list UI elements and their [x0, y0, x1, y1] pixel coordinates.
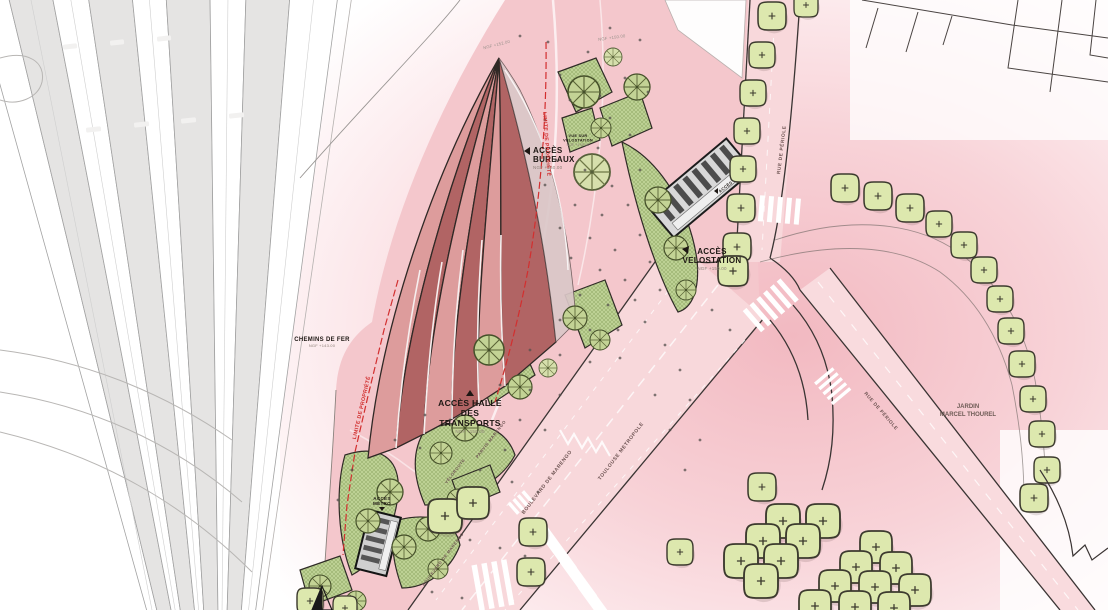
tree-simple-icon	[748, 473, 778, 504]
tree-simple-icon	[878, 592, 913, 610]
tree-simple-icon	[744, 564, 781, 602]
dot	[659, 289, 662, 292]
tree-round-a-icon	[474, 335, 504, 365]
dot	[351, 469, 354, 472]
dot	[639, 169, 642, 172]
dot	[611, 185, 614, 188]
tree-simple-icon	[799, 590, 834, 610]
dot	[634, 299, 637, 302]
dot	[589, 361, 592, 364]
site-plan-svg: ACCÈSBUREAUX NGF +150.00 ACCÈSVELOSTATIO…	[0, 0, 1108, 610]
tree-simple-icon	[831, 174, 861, 205]
dot	[504, 449, 507, 452]
dot	[609, 27, 612, 30]
dot	[587, 51, 590, 54]
dot	[479, 469, 482, 472]
tree-simple-icon	[1020, 484, 1050, 515]
tree-round-a-icon	[676, 280, 696, 300]
dot	[529, 389, 532, 392]
tree-simple-icon	[987, 286, 1015, 315]
tree-simple-icon	[951, 232, 979, 261]
dot	[574, 204, 577, 207]
tree-round-a-icon	[356, 509, 380, 533]
dot	[559, 354, 562, 357]
tree-round-b-icon	[574, 154, 610, 190]
dot	[519, 35, 522, 38]
dot	[584, 169, 587, 172]
dot	[559, 227, 562, 230]
tree-round-a-icon	[591, 118, 611, 138]
tree-round-a-icon	[508, 375, 532, 399]
dot	[524, 555, 527, 558]
dot	[654, 394, 657, 397]
dot	[547, 41, 550, 44]
dot	[629, 134, 632, 137]
dot	[669, 429, 672, 432]
dot	[544, 184, 547, 187]
dot	[607, 304, 610, 307]
svg-text:NGF +145.00: NGF +145.00	[567, 143, 590, 147]
tree-round-a-icon	[430, 442, 452, 464]
dot	[699, 439, 702, 442]
dot	[569, 99, 572, 102]
dot	[624, 279, 627, 282]
tree-simple-icon	[667, 539, 695, 568]
dot	[499, 547, 502, 550]
tree-simple-icon	[1020, 386, 1048, 415]
white-topright	[850, 0, 1108, 140]
dot	[469, 539, 472, 542]
tree-simple-icon	[971, 257, 999, 286]
svg-text:ACCÈSMÉTRO: ACCÈSMÉTRO	[373, 494, 391, 506]
dot	[570, 257, 573, 260]
dot	[601, 214, 604, 217]
dot	[619, 357, 622, 360]
dot	[617, 329, 620, 332]
tree-round-a-icon	[590, 330, 610, 350]
tree-simple-icon	[1029, 421, 1057, 450]
svg-text:NGF +143.00: NGF +143.00	[309, 343, 336, 348]
svg-text:NGF +150.00: NGF +150.00	[697, 266, 727, 271]
dot	[559, 319, 562, 322]
tree-simple-icon	[730, 156, 758, 185]
dot	[544, 429, 547, 432]
dot	[729, 329, 732, 332]
dot	[519, 419, 522, 422]
dot	[579, 294, 582, 297]
tree-simple-icon	[1009, 351, 1037, 380]
dot	[419, 447, 422, 450]
tree-round-a-icon	[624, 74, 650, 100]
tree-round-a-icon	[392, 535, 416, 559]
tree-simple-icon	[519, 518, 549, 549]
dot	[337, 499, 340, 502]
dot	[599, 269, 602, 272]
dot	[614, 249, 617, 252]
tree-simple-icon	[727, 194, 757, 225]
tree-round-b-icon	[604, 48, 622, 66]
dot	[624, 77, 627, 80]
dot	[644, 321, 647, 324]
tree-simple-icon	[734, 118, 762, 147]
tree-simple-icon	[749, 42, 777, 71]
dot	[649, 261, 652, 264]
dot	[559, 394, 562, 397]
dot	[647, 91, 650, 94]
dot	[461, 597, 464, 600]
dot	[711, 309, 714, 312]
tree-simple-icon	[758, 2, 788, 33]
dot	[589, 329, 592, 332]
dot	[689, 399, 692, 402]
dot	[511, 481, 514, 484]
dot	[599, 95, 602, 98]
site-plan-map: ACCÈSBUREAUX NGF +150.00 ACCÈSVELOSTATIO…	[0, 0, 1108, 610]
dot	[609, 117, 612, 120]
dot	[559, 74, 562, 77]
dot	[499, 384, 502, 387]
dot	[664, 344, 667, 347]
tree-simple-icon	[457, 487, 492, 523]
svg-text:NGF +150.00: NGF +150.00	[455, 429, 485, 434]
tree-round-a-icon	[563, 306, 587, 330]
dot	[589, 237, 592, 240]
dot	[684, 469, 687, 472]
tree-round-a-icon	[568, 76, 600, 108]
dot	[679, 369, 682, 372]
tree-simple-icon	[896, 194, 926, 225]
dot	[639, 234, 642, 237]
dot	[639, 39, 642, 42]
dot	[529, 349, 532, 352]
tree-simple-icon	[926, 211, 954, 240]
tree-simple-icon	[517, 558, 547, 589]
dot	[424, 414, 427, 417]
tree-simple-icon	[839, 591, 874, 610]
tree-simple-icon	[864, 182, 894, 213]
tree-simple-icon	[740, 80, 768, 109]
dot	[431, 591, 434, 594]
tree-simple-icon	[998, 318, 1026, 347]
dot	[627, 204, 630, 207]
tree-simple-icon	[333, 596, 359, 610]
tree-round-b-icon	[539, 359, 557, 377]
tree-round-a-icon	[645, 187, 671, 213]
dot	[597, 147, 600, 150]
dot	[394, 439, 397, 442]
